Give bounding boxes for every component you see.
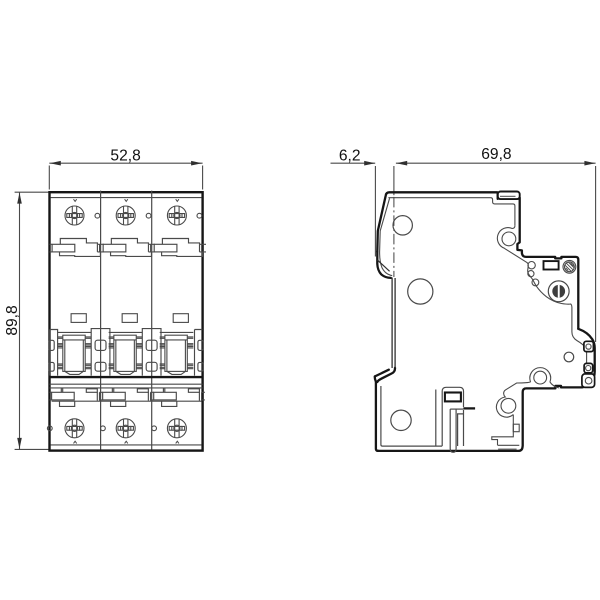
svg-text:89,8: 89,8 — [4, 305, 21, 335]
svg-text:6,2: 6,2 — [339, 148, 361, 165]
svg-text:69,8: 69,8 — [481, 146, 511, 163]
svg-text:52,8: 52,8 — [110, 147, 140, 164]
